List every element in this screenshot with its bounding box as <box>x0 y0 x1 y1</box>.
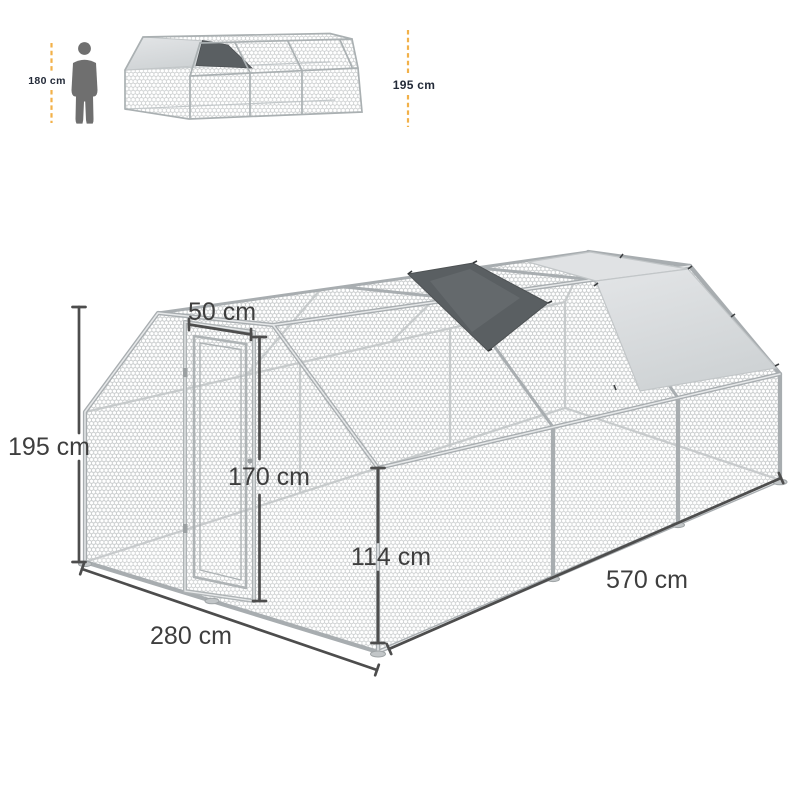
wall-height-label: 114 cm <box>351 544 431 570</box>
door-height-label: 170 cm <box>228 464 310 490</box>
person-height-label: 180 cm <box>26 75 67 87</box>
main-cage-illustration <box>73 252 788 675</box>
structure-height-label: 195 cm <box>391 78 438 92</box>
small-cage-illustration <box>125 34 362 120</box>
overall-length-label: 570 cm <box>606 567 688 593</box>
overall-width-label: 280 cm <box>150 623 232 649</box>
size-comparison-section <box>52 30 409 127</box>
person-silhouette <box>72 42 98 124</box>
door-hinge-bottom <box>183 524 188 533</box>
door-hinge-top <box>183 368 188 377</box>
product-dimension-diagram: 180 cm 195 cm 50 cm 170 cm 114 cm 195 cm… <box>0 0 800 800</box>
overall-height-label: 195 cm <box>8 434 90 460</box>
door-width-label: 50 cm <box>188 299 256 325</box>
diagram-artwork <box>0 0 800 800</box>
